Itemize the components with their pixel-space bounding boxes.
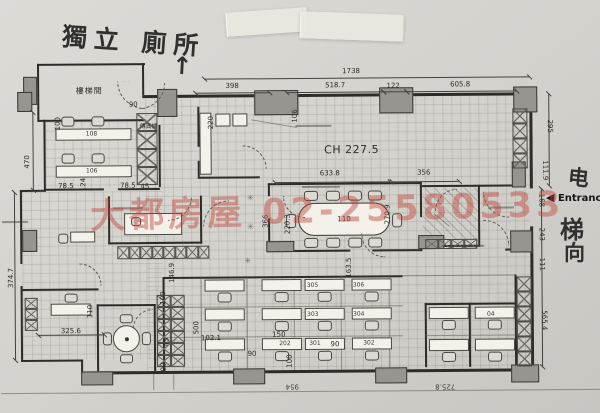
cabinet-cell bbox=[25, 320, 38, 331]
dimension-label: 124 bbox=[80, 178, 87, 191]
cabinet-cell bbox=[157, 307, 171, 319]
chair bbox=[218, 292, 232, 302]
cabinet-cell bbox=[517, 336, 532, 351]
chair bbox=[318, 292, 332, 302]
structural-column bbox=[511, 364, 539, 382]
dimension-label: 565.4 bbox=[540, 310, 547, 330]
structural-column bbox=[81, 371, 113, 385]
structural-column bbox=[510, 230, 532, 252]
cabinet-cell bbox=[438, 239, 451, 249]
dimension-label: 356 bbox=[417, 170, 430, 177]
partition-line bbox=[1, 389, 600, 394]
chair bbox=[442, 352, 456, 362]
masking-tape bbox=[300, 11, 405, 42]
dimension-label: 163.5 bbox=[346, 258, 353, 278]
cabinet-cell bbox=[513, 153, 528, 168]
desk bbox=[429, 339, 469, 351]
desk bbox=[215, 113, 230, 126]
desk-number: 202 bbox=[279, 341, 290, 347]
chair bbox=[275, 292, 289, 302]
annotation-text-bar bbox=[2, 221, 28, 223]
desk-number: 04 bbox=[487, 312, 495, 318]
chair bbox=[326, 238, 340, 248]
chair bbox=[488, 352, 502, 362]
chair bbox=[348, 238, 362, 248]
room-label: 傳真機 bbox=[139, 124, 157, 130]
cabinet-cell bbox=[171, 307, 185, 319]
desk-number: 304 bbox=[353, 312, 364, 318]
chair bbox=[365, 350, 379, 360]
structural-column bbox=[22, 230, 37, 252]
wall bbox=[198, 176, 260, 178]
cabinet-cell bbox=[163, 246, 175, 259]
desk bbox=[475, 339, 515, 351]
chair bbox=[304, 238, 318, 248]
dimension-label: 220 bbox=[208, 116, 215, 129]
dimension-label: 1738 bbox=[342, 68, 360, 75]
entrance-text: Entrance bbox=[558, 193, 600, 204]
desk bbox=[205, 308, 245, 320]
wall bbox=[37, 64, 39, 122]
dimension-label: 725.8 bbox=[435, 382, 455, 389]
dimension-label: 90 bbox=[330, 341, 339, 348]
chair bbox=[488, 320, 502, 330]
structural-column bbox=[375, 367, 407, 383]
chair bbox=[365, 320, 379, 330]
desk bbox=[429, 307, 469, 319]
dimension-label: 295 bbox=[546, 120, 553, 133]
desk bbox=[51, 303, 91, 315]
dimension-label: 111 bbox=[538, 258, 545, 271]
dimension-label: 500 bbox=[193, 321, 200, 334]
chair bbox=[65, 294, 78, 303]
cabinet-cell bbox=[25, 298, 38, 309]
partition-line bbox=[173, 374, 174, 390]
desk bbox=[262, 279, 302, 291]
dimension-line bbox=[32, 112, 34, 190]
dimension-label: 518.7 bbox=[325, 82, 345, 89]
chair bbox=[365, 291, 379, 301]
dimension-label: 106 bbox=[292, 109, 299, 122]
cabinet-cell bbox=[516, 276, 531, 291]
dimension-label: 605.8 bbox=[450, 81, 470, 88]
chair bbox=[318, 351, 332, 361]
cabinet-cell bbox=[171, 295, 185, 307]
cabinet-cell bbox=[517, 321, 532, 336]
handwritten-elevator-char: 电 bbox=[566, 161, 590, 193]
annotation-text-bar bbox=[452, 245, 484, 247]
cabinet-cell bbox=[513, 138, 528, 153]
dimension-label: 398 bbox=[225, 83, 238, 90]
chair bbox=[218, 351, 232, 361]
desk-number: 306 bbox=[353, 283, 364, 289]
desk-number: 302 bbox=[363, 340, 374, 346]
desk-number: 106 bbox=[86, 168, 97, 174]
cabinet-cell bbox=[157, 319, 171, 331]
chair bbox=[58, 234, 68, 244]
wall bbox=[21, 360, 83, 362]
up-arrow-icon: ↑ bbox=[171, 51, 193, 80]
cabinet-cell bbox=[517, 306, 532, 321]
dimension-label: 102.1 bbox=[201, 335, 221, 342]
cabinet-cell bbox=[152, 246, 164, 259]
dimension-label: 90 bbox=[248, 351, 257, 358]
cabinet-cell bbox=[198, 246, 210, 259]
handwritten-elevator-char: 向 bbox=[564, 237, 585, 267]
room-label: 樓梯間 bbox=[76, 87, 103, 95]
structural-column bbox=[233, 368, 265, 384]
dimension-label: 78.5 bbox=[58, 183, 74, 190]
wall bbox=[97, 304, 156, 306]
cabinet-cell bbox=[117, 246, 129, 259]
cabinet-cell bbox=[171, 343, 185, 355]
desk-number: 305 bbox=[307, 283, 318, 289]
cabinet-cell bbox=[517, 351, 532, 366]
chair bbox=[218, 321, 232, 331]
cabinet-cell bbox=[512, 108, 527, 123]
cabinet-cell bbox=[186, 246, 198, 259]
desk bbox=[262, 308, 302, 320]
partition-line bbox=[153, 374, 154, 390]
cabinet-cell bbox=[129, 246, 141, 259]
dimension-line bbox=[383, 91, 406, 92]
chair bbox=[120, 354, 133, 363]
floorplan-scan: ✳✳✳1738398518.7122605.8295111.9168243111… bbox=[0, 0, 600, 413]
wall bbox=[37, 63, 145, 66]
dimension-label: 374.7 bbox=[8, 268, 15, 288]
desk-number: 303 bbox=[307, 312, 318, 318]
chair bbox=[61, 117, 74, 127]
dimension-label: 243 bbox=[538, 228, 545, 241]
table-center bbox=[125, 337, 129, 341]
cabinet-cell bbox=[140, 246, 152, 259]
plant-icon: ✳ bbox=[244, 257, 254, 267]
cabinet-cell bbox=[171, 319, 185, 331]
dimension-label: 954 bbox=[286, 383, 299, 390]
dimension-label: 110 bbox=[87, 305, 94, 318]
cabinet-cell bbox=[171, 331, 185, 343]
desk bbox=[205, 279, 245, 291]
dimension-label: 122 bbox=[386, 83, 399, 90]
cabinet-cell bbox=[517, 291, 532, 306]
dimension-label: 100 bbox=[160, 291, 167, 304]
desk bbox=[232, 113, 247, 126]
dimension-label: 146.9 bbox=[169, 263, 176, 283]
cabinet-cell bbox=[425, 239, 438, 249]
dimension-label: 45 bbox=[163, 337, 170, 346]
dimension-label: 100 bbox=[55, 117, 62, 130]
dimension-label: 90 bbox=[161, 362, 168, 371]
chair bbox=[318, 321, 332, 331]
dimension-label: 90 bbox=[129, 102, 138, 109]
wall bbox=[158, 125, 160, 187]
cabinet-cell bbox=[512, 123, 527, 138]
dimension-label: 470 bbox=[24, 155, 31, 168]
cabinet-cell bbox=[25, 309, 38, 320]
desk-number: 301 bbox=[309, 341, 320, 347]
dimension-label: 100 bbox=[287, 354, 294, 367]
chair bbox=[62, 154, 75, 164]
structural-column bbox=[266, 241, 294, 252]
dimension-label: 150 bbox=[272, 332, 285, 339]
annotation-text-bar bbox=[295, 125, 331, 127]
chair bbox=[442, 320, 456, 330]
chair bbox=[91, 116, 104, 126]
ceiling-height-label: CH 227.5 bbox=[324, 144, 379, 155]
cabinet-cell bbox=[171, 355, 185, 367]
cabinet-cell bbox=[136, 131, 157, 149]
desk-number: 108 bbox=[86, 131, 97, 137]
dimension-label: 633.8 bbox=[320, 170, 340, 177]
dimension-label: 325.6 bbox=[61, 328, 81, 335]
chair bbox=[120, 314, 133, 323]
chair bbox=[92, 153, 105, 163]
cabinet-cell bbox=[175, 246, 187, 259]
chair bbox=[142, 332, 151, 345]
cabinet-cell bbox=[137, 149, 158, 167]
dimension-line bbox=[204, 76, 529, 79]
